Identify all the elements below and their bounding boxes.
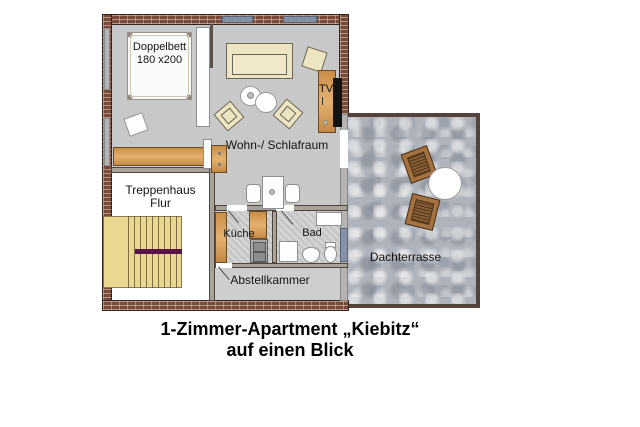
wardrobe	[196, 27, 210, 127]
coffee-table-2	[255, 92, 277, 113]
stairs-accent	[135, 249, 182, 254]
bath-shelf	[316, 212, 342, 226]
floorplan: TV Doppelbett 180 x200 Wohn-/ Schlafraum…	[0, 0, 640, 427]
partition-stub	[210, 24, 213, 68]
tv-label-line	[322, 97, 323, 105]
bed-label-line1: Doppelbett	[127, 41, 192, 53]
storage-label: Abstellkammer	[210, 274, 330, 287]
caption: 1-Zimmer-Apartment „Kiebitz“ auf einen B…	[0, 319, 580, 361]
tv-label: TV	[316, 83, 336, 95]
window-top-1-icon	[222, 16, 253, 23]
living-room-label: Wohn-/ Schlafraum	[217, 139, 337, 152]
dining-chair-left	[246, 184, 261, 203]
sideboard	[113, 147, 204, 166]
wall-storage-top	[215, 263, 348, 268]
caption-line1: 1-Zimmer-Apartment „Kiebitz“	[0, 319, 580, 340]
tv-knob	[323, 120, 328, 125]
sofa	[226, 43, 293, 79]
bed-label-line2: 180 x200	[127, 54, 192, 66]
terrace-label: Dachterrasse	[339, 251, 472, 264]
wall-kitchen-bath	[272, 211, 277, 263]
wall-bottom	[103, 301, 348, 310]
window-left-1-icon	[104, 28, 110, 90]
bath-label: Bad	[299, 227, 325, 239]
window-left-2-icon	[104, 118, 110, 166]
terrace-table	[428, 167, 462, 200]
caption-line2: auf einen Blick	[0, 340, 580, 361]
wall-living-stairwell	[111, 167, 215, 173]
kitchen-sink	[250, 239, 268, 263]
dining-chair-right	[285, 184, 300, 203]
stairwell-label-line2: Flur	[113, 197, 208, 210]
kitchen-door-gap	[227, 205, 247, 211]
dining-table-center	[269, 189, 275, 195]
terrace-door-gap	[340, 130, 348, 168]
kitchen-label: Küche	[217, 228, 261, 240]
window-top-2-icon	[283, 16, 317, 23]
coffee-table-1-center	[247, 92, 254, 99]
shower	[279, 241, 298, 262]
